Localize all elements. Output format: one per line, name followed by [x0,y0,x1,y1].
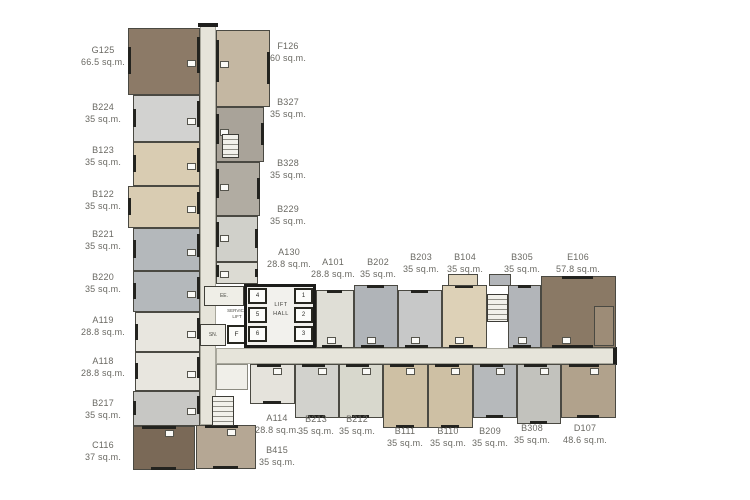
unit-area: 37 sq.m. [85,451,121,463]
unit-label-E106: E10657.8 sq.m. [556,251,600,275]
unit-B305-upper-block [489,274,511,286]
wall-segment [518,285,531,288]
bathroom-fixture [562,337,571,344]
wall-segment [197,396,200,414]
lift-number: 5 [256,312,259,318]
unit-label-C116: C11637 sq.m. [85,439,121,463]
unit-B220 [133,271,200,312]
unit-area: 35 sq.m. [472,437,508,449]
unit-A130 [216,262,258,284]
wall-segment [151,467,176,470]
unit-number: B203 [403,251,439,263]
unit-area: 60 sq.m. [270,52,306,64]
wall-segment [569,364,599,367]
lift-box-5: 5 [248,307,267,323]
bathroom-fixture [455,337,464,344]
wall-segment [133,155,136,173]
unit-label-B328: B32835 sq.m. [270,157,306,181]
bathroom-fixture [220,235,229,242]
unit-B415 [196,425,256,469]
wall-segment [213,466,237,469]
lift-box-1: 1 [294,288,313,304]
lift-box-3: 3 [294,326,313,342]
unit-B110 [428,364,473,428]
wall-segment [361,345,385,348]
bathroom-fixture [187,291,196,298]
wall-segment [255,229,258,247]
wall-segment [133,109,136,128]
lift-hall-label: LIFT HALL [267,301,295,319]
unit-F126 [216,30,270,107]
unit-label-D107: D10748.6 sq.m. [563,422,607,446]
wall-segment [405,345,429,348]
wall-segment [197,148,200,172]
unit-number: B328 [270,157,306,169]
unit-B213 [295,364,339,418]
bathroom-fixture [590,368,599,375]
bathroom-fixture [187,206,196,213]
unit-B122 [128,186,200,228]
unit-label-B305: B30535 sq.m. [504,251,540,275]
wall-segment [197,234,200,257]
unit-number: B327 [270,96,306,108]
wall-segment [322,345,342,348]
wall-segment [197,192,200,214]
unit-area: 35 sq.m. [270,169,306,181]
wall-segment [128,47,131,74]
unit-label-B123: B12335 sq.m. [85,144,121,168]
unit-area: 35 sq.m. [270,215,306,227]
wall-segment [486,415,504,418]
wall-segment [216,114,219,144]
unit-number: A101 [311,256,355,268]
unit-area: 28.8 sq.m. [255,424,299,436]
unit-area: 35 sq.m. [387,437,423,449]
unit-area: 35 sq.m. [514,434,550,446]
unit-number: B305 [504,251,540,263]
lift-box-2: 2 [294,307,313,323]
unit-area: 35 sq.m. [85,113,121,125]
unit-number: B220 [85,271,121,283]
unit-number: E106 [556,251,600,263]
unit-label-A101: A10128.8 sq.m. [311,256,355,280]
wall-segment [216,222,219,247]
bathroom-fixture [187,118,196,125]
wall-segment [346,364,370,367]
unit-label-A119: A11928.8 sq.m. [81,314,125,338]
lift-lobby [216,364,248,390]
bathroom-fixture [318,368,327,375]
unit-area: 35 sq.m. [85,409,121,421]
unit-area: 28.8 sq.m. [267,258,311,270]
unit-B202 [354,285,398,348]
wall-segment [197,101,200,126]
bathroom-fixture [540,368,549,375]
unit-label-B224: B22435 sq.m. [85,101,121,125]
unit-number: G125 [81,44,125,56]
bathroom-fixture [187,60,196,67]
staircase-north [222,134,239,158]
wall-segment [197,357,200,378]
bathroom-fixture [187,371,196,378]
unit-label-B122: B12235 sq.m. [85,188,121,212]
unit-number: B308 [514,422,550,434]
wall-segment [133,401,136,415]
unit-B111 [383,364,428,428]
unit-label-B213: B21335 sq.m. [298,413,334,437]
unit-A119 [135,312,200,352]
unit-number: D107 [563,422,607,434]
unit-label-B415: B41535 sq.m. [259,444,295,468]
bathroom-fixture [451,368,460,375]
bathroom-fixture [367,337,376,344]
unit-number: B110 [430,425,466,437]
unit-B221 [133,228,200,271]
unit-label-G125: G12566.5 sq.m. [81,44,125,68]
unit-area: 35 sq.m. [85,240,121,252]
bathroom-fixture [327,337,336,344]
wall-segment [327,290,342,293]
unit-A114 [250,364,295,404]
unit-label-B212: B21235 sq.m. [339,413,375,437]
unit-A118 [135,352,200,391]
unit-B308 [517,364,561,424]
sn-room-label: SN. [209,332,217,339]
unit-area: 35 sq.m. [85,283,121,295]
unit-area: 35 sq.m. [270,108,306,120]
unit-A101 [316,290,354,348]
unit-area: 35 sq.m. [259,456,295,468]
unit-number: B209 [472,425,508,437]
unit-number: B224 [85,101,121,113]
bathroom-fixture [411,337,420,344]
unit-E106-inner-block [594,306,614,346]
wall-segment [128,198,131,215]
unit-G125 [128,28,200,95]
unit-number: B111 [387,425,423,437]
wall-segment [552,345,593,348]
wall-segment [216,169,219,198]
bathroom-fixture [362,368,371,375]
bathroom-fixture [518,337,527,344]
unit-label-B110: B11035 sq.m. [430,425,466,449]
unit-label-B220: B22035 sq.m. [85,271,121,295]
corridor-horizontal [216,348,616,364]
wall-segment [390,364,414,367]
wall-segment [449,345,473,348]
unit-label-B209: B20935 sq.m. [472,425,508,449]
unit-B209 [473,364,517,418]
unit-number: B221 [85,228,121,240]
wall-segment [367,285,385,288]
unit-number: A118 [81,355,125,367]
corridor-end-wall [613,347,617,365]
unit-label-B203: B20335 sq.m. [403,251,439,275]
unit-area: 28.8 sq.m. [311,268,355,280]
bathroom-fixture [187,163,196,170]
unit-number: B217 [85,397,121,409]
unit-label-B202: B20235 sq.m. [360,256,396,280]
wall-segment [524,364,548,367]
wall-segment [197,37,200,73]
wall-segment [135,324,138,340]
unit-label-B327: B32735 sq.m. [270,96,306,120]
wall-segment [216,265,219,276]
bathroom-fixture [187,331,196,338]
bathroom-fixture [220,184,229,191]
unit-label-B221: B22135 sq.m. [85,228,121,252]
bathroom-fixture [220,61,229,68]
unit-number: B123 [85,144,121,156]
corridor-vertical [200,26,216,425]
unit-number: B415 [259,444,295,456]
unit-label-B308: B30835 sq.m. [514,422,550,446]
bathroom-fixture [187,408,196,415]
bathroom-fixture [220,271,229,278]
unit-label-F126: F12660 sq.m. [270,40,306,64]
lift-number: 4 [256,293,259,299]
lift-number: 6 [256,331,259,337]
bathroom-fixture [406,368,415,375]
unit-number: B202 [360,256,396,268]
unit-number: B229 [270,203,306,215]
unit-B123 [133,142,200,186]
staircase-east [487,294,508,322]
wall-segment [135,363,138,379]
wall-segment [302,364,326,367]
wall-segment [261,123,264,145]
lift-box-4: 4 [248,288,267,304]
wall-segment [133,283,136,299]
electrical-room: EE. [204,286,244,306]
unit-label-B104: B10435 sq.m. [447,251,483,275]
lift-box-6: 6 [248,326,267,342]
unit-label-B111: B11135 sq.m. [387,425,423,449]
lift-number: 3 [302,331,305,337]
electrical-room-label: EE. [220,293,228,300]
unit-area: 66.5 sq.m. [81,56,125,68]
unit-area: 48.6 sq.m. [563,434,607,446]
unit-B217 [133,391,200,426]
wall-segment [133,240,136,257]
unit-B104 [442,285,487,348]
unit-number: A119 [81,314,125,326]
floor-plan: G12566.5 sq.m.B22435 sq.m.B12335 sq.m.B1… [0,0,750,500]
wall-segment [263,401,281,404]
wall-segment [513,345,530,348]
unit-label-B229: B22935 sq.m. [270,203,306,227]
unit-number: B122 [85,188,121,200]
unit-area: 35 sq.m. [403,263,439,275]
unit-B305 [508,285,541,348]
unit-area: 57.8 sq.m. [556,263,600,275]
unit-area: 35 sq.m. [298,425,334,437]
unit-area: 35 sq.m. [85,156,121,168]
wall-segment [197,277,200,299]
unit-number: B213 [298,413,334,425]
unit-number: C116 [85,439,121,451]
wall-segment [216,40,219,82]
wall-segment [562,276,593,279]
unit-area: 35 sq.m. [85,200,121,212]
bathroom-fixture [273,368,282,375]
fire-lift-label: F [235,331,239,338]
corridor-top-wall [198,23,218,27]
unit-area: 35 sq.m. [430,437,466,449]
bathroom-fixture [227,429,236,436]
unit-label-A118: A11828.8 sq.m. [81,355,125,379]
unit-number: F126 [270,40,306,52]
unit-D107 [561,364,616,418]
wall-segment [435,364,459,367]
unit-label-B217: B21735 sq.m. [85,397,121,421]
bathroom-fixture [496,368,505,375]
unit-area: 35 sq.m. [360,268,396,280]
unit-B328 [216,162,260,216]
unit-area: 28.8 sq.m. [81,326,125,338]
wall-segment [142,426,176,429]
wall-segment [257,364,281,367]
unit-B229 [216,216,258,262]
bathroom-fixture [187,249,196,256]
wall-segment [255,269,258,277]
unit-number: B104 [447,251,483,263]
sn-room: SN. [200,324,226,346]
lift-number: 2 [302,312,305,318]
lift-number: 1 [302,293,305,299]
wall-segment [577,415,599,418]
wall-segment [480,364,504,367]
unit-area: 35 sq.m. [339,425,375,437]
unit-B212 [339,364,383,418]
wall-segment [257,178,260,200]
unit-label-A130: A13028.8 sq.m. [267,246,311,270]
staircase-south [212,396,234,426]
unit-area: 28.8 sq.m. [81,367,125,379]
unit-number: B212 [339,413,375,425]
unit-B203 [398,290,442,348]
unit-number: A130 [267,246,311,258]
unit-B224 [133,95,200,142]
bathroom-fixture [165,430,174,437]
wall-segment [411,290,429,293]
unit-label-A114: A11428.8 sq.m. [255,412,299,436]
unit-B104-upper-block [448,274,478,286]
unit-C116 [133,426,195,470]
unit-number: A114 [255,412,299,424]
